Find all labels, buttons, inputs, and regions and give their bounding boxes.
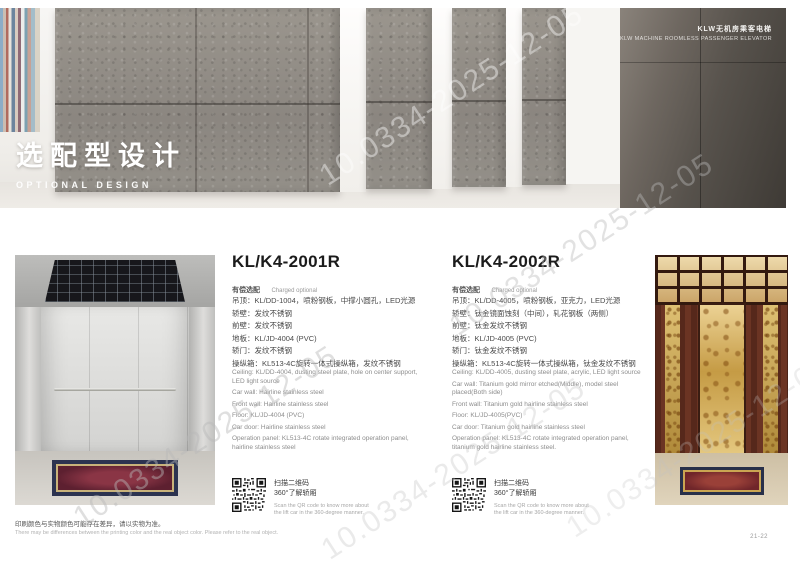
- spec-list-en: Ceiling: KL/DD-4004, dusting steel plate…: [232, 369, 430, 455]
- qr-caption-en: the lift car in the 360-degree manner.: [494, 510, 589, 517]
- spec-line: 吊顶：KL/DD-4005，喷粉钢板，亚克力，LED光源: [452, 296, 650, 305]
- pricing-en: Charged optional: [491, 288, 537, 294]
- far-white-wall: [566, 8, 620, 184]
- section-title-en: OPTIONAL DESIGN: [16, 180, 186, 190]
- wall-seam: [307, 8, 309, 192]
- spec-line: 前壁：发纹不锈钢: [232, 321, 430, 330]
- carpet: [680, 467, 764, 495]
- car-back-wall: [41, 307, 189, 451]
- qr-caption: 扫描二维码 360°了解轿厢 Scan the QR code to know …: [274, 478, 369, 516]
- spec-line: Floor: KL/JD-4004 (PVC): [232, 412, 430, 421]
- hero-lobby-photo: KLW无机房乘客电梯 KLW MACHINE ROOMLESS PASSENGE…: [0, 8, 786, 208]
- brand-title-en: KLW MACHINE ROOMLESS PASSENGER ELEVATOR: [620, 36, 772, 42]
- spec-line: Front wall: Hairline stainless steel: [232, 401, 430, 410]
- car-ceiling: [15, 255, 215, 307]
- catalog-page: KLW无机房乘客电梯 KLW MACHINE ROOMLESS PASSENGE…: [0, 0, 800, 569]
- wall-seam: [195, 8, 197, 192]
- print-disclaimer: 印刷颜色与实物颜色可能存在差异，请以实物为准。 There may be dif…: [15, 521, 278, 537]
- car-side-column: [189, 307, 215, 451]
- wall-seam: [55, 103, 340, 105]
- spec-line: 操纵箱：KL513-4C旋转一体式操纵箱，发纹不锈钢: [232, 359, 430, 368]
- qr-block: 扫描二维码 360°了解轿厢 Scan the QR code to know …: [452, 478, 589, 516]
- elevator-car-photo-2001r: [15, 255, 215, 505]
- qr-code: [452, 478, 486, 512]
- product-model: KL/K4-2002R: [452, 252, 560, 272]
- spec-line: 地板：KL/JD-4005 (PVC): [452, 334, 650, 343]
- product-spec-2002r: KL/K4-2002R 有偿选配 Charged optional 吊顶：KL/…: [452, 252, 650, 544]
- qr-code: [232, 478, 266, 512]
- brand-header: KLW无机房乘客电梯 KLW MACHINE ROOMLESS PASSENGE…: [620, 24, 772, 42]
- lobby-artwork: [0, 8, 40, 132]
- ceiling-grille: [45, 260, 185, 302]
- concrete-pillar: [452, 8, 506, 187]
- spec-line: Front wall: Titanium gold hairline stain…: [452, 401, 650, 410]
- brand-title-zh: KLW无机房乘客电梯: [620, 24, 772, 34]
- spec-line: 轿门：钛金发纹不锈钢: [452, 346, 650, 355]
- qr-caption-en: the lift car in the 360-degree manner.: [274, 510, 369, 517]
- spec-line: Car door: Hairline stainless steel: [232, 424, 430, 433]
- light-gap: [432, 8, 452, 189]
- elevator-car-photo-2002r: [655, 255, 788, 505]
- car-floor: [655, 453, 788, 505]
- wall-seam: [366, 101, 432, 103]
- qr-caption: 扫描二维码 360°了解轿厢 Scan the QR code to know …: [494, 478, 589, 516]
- spec-line: 操纵箱：KL513-4C旋转一体式操纵箱，钛金发纹不锈钢: [452, 359, 650, 368]
- gold-etched-strip: [763, 305, 778, 453]
- spec-list-zh: 吊顶：KL/DD-4005，喷粉钢板，亚克力，LED光源轿壁：钛金镜面蚀刻（中间…: [452, 296, 650, 371]
- spec-line: Ceiling: KL/DD-4005, dusting steel plate…: [452, 369, 650, 378]
- product-model: KL/K4-2001R: [232, 252, 340, 272]
- spec-line: Floor: KL/JD-4005(PVC): [452, 412, 650, 421]
- car-floor: [15, 451, 215, 505]
- spec-line: Operation panel: KL513-4C rotate integra…: [232, 435, 430, 452]
- spec-line: 轿壁：钛金镜面蚀刻（中间），轧花钢板（两侧）: [452, 309, 650, 318]
- section-title: 选配型设计 OPTIONAL DESIGN: [16, 134, 186, 190]
- product-spec-2001r: KL/K4-2001R 有偿选配 Charged optional 吊顶：KL/…: [232, 252, 430, 544]
- disclaimer-zh: 印刷颜色与实物颜色可能存在差异，请以实物为准。: [15, 521, 278, 530]
- wall-seam: [452, 100, 506, 102]
- spec-line: Car door: Titanium gold hairline stainle…: [452, 424, 650, 433]
- pricing-en: Charged optional: [271, 288, 317, 294]
- page-number: 21-22: [750, 534, 768, 540]
- pricing-zh: 有偿选配: [452, 287, 480, 294]
- qr-caption-zh: 360°了解轿厢: [274, 489, 369, 499]
- pricing-zh: 有偿选配: [232, 287, 260, 294]
- spec-line: Operation panel: KL513-4C rotate integra…: [452, 435, 650, 452]
- qr-caption-zh: 360°了解轿厢: [494, 489, 589, 499]
- section-title-zh: 选配型设计: [16, 134, 186, 173]
- light-gap: [506, 8, 522, 187]
- gold-mirror-panel: [700, 305, 744, 453]
- disclaimer-en: There may be differences between the pri…: [15, 530, 278, 538]
- spec-line: 轿门：发纹不锈钢: [232, 346, 430, 355]
- car-ceiling: [655, 255, 788, 305]
- gold-etched-strip: [665, 305, 680, 453]
- qr-caption-zh: 扫描二维码: [494, 479, 589, 489]
- spec-line: 前壁：钛金发纹不锈钢: [452, 321, 650, 330]
- concrete-pillar: [366, 8, 432, 189]
- qr-caption-en: Scan the QR code to know more about: [274, 503, 369, 510]
- spec-line: 地板：KL/JD-4004 (PVC): [232, 334, 430, 343]
- car-side-column: [15, 307, 41, 451]
- spec-line: Ceiling: KL/DD-4004, dusting steel plate…: [232, 369, 430, 386]
- wall-seam: [522, 99, 566, 101]
- handrail: [54, 388, 175, 391]
- spec-line: Car wall: Hairline stainless steel: [232, 389, 430, 398]
- spec-line: 轿壁：发纹不锈钢: [232, 309, 430, 318]
- carpet: [52, 460, 178, 496]
- concrete-pillar: [522, 8, 566, 185]
- spec-list-en: Ceiling: KL/DD-4005, dusting steel plate…: [452, 369, 650, 455]
- qr-caption-en: Scan the QR code to know more about: [494, 503, 589, 510]
- qr-block: 扫描二维码 360°了解轿厢 Scan the QR code to know …: [232, 478, 369, 516]
- light-gap: [340, 8, 366, 192]
- pricing-note: 有偿选配 Charged optional: [232, 279, 317, 297]
- spec-line: Car wall: Titanium gold mirror etched(Mi…: [452, 381, 650, 398]
- pricing-note: 有偿选配 Charged optional: [452, 279, 537, 297]
- spec-line: 吊顶：KL/DD-1004，喷粉钢板，中撑小圆孔，LED光源: [232, 296, 430, 305]
- spec-list-zh: 吊顶：KL/DD-1004，喷粉钢板，中撑小圆孔，LED光源轿壁：发纹不锈钢前壁…: [232, 296, 430, 371]
- panel-seam: [620, 62, 786, 63]
- qr-caption-zh: 扫描二维码: [274, 479, 369, 489]
